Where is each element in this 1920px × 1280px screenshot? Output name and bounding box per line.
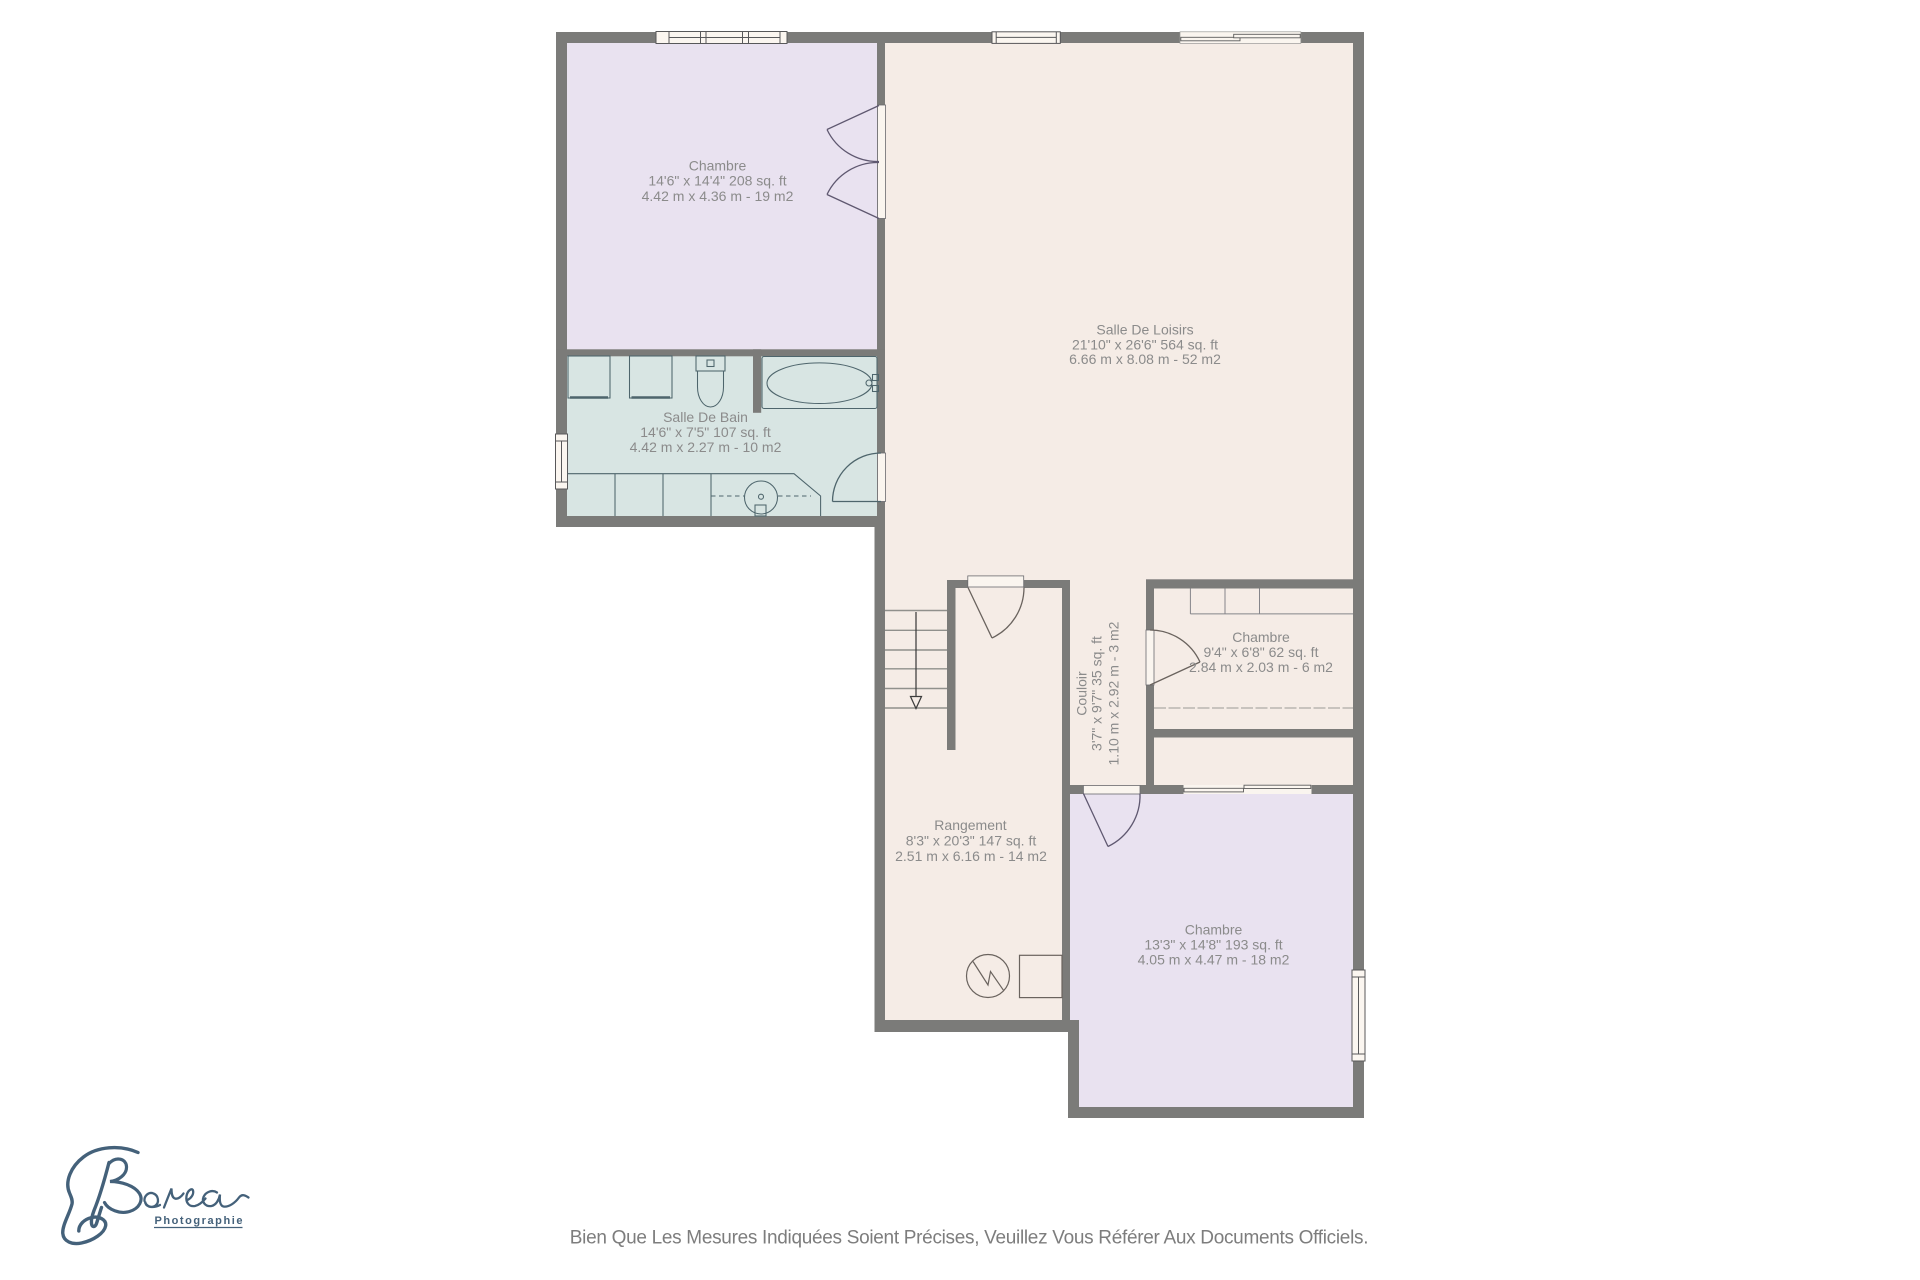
svg-text:3'7" x 9'7" 35 sq. ft: 3'7" x 9'7" 35 sq. ft (1089, 636, 1105, 751)
svg-text:Rangement: Rangement (934, 817, 1006, 833)
svg-text:Chambre: Chambre (689, 157, 747, 173)
svg-text:21'10" x 26'6" 564 sq. ft: 21'10" x 26'6" 564 sq. ft (1072, 336, 1218, 352)
svg-text:13'3" x 14'8" 193 sq. ft: 13'3" x 14'8" 193 sq. ft (1144, 937, 1282, 953)
svg-text:Bien Que Les Mesures Indiquées: Bien Que Les Mesures Indiquées Soient Pr… (570, 1228, 1368, 1249)
svg-text:Chambre: Chambre (1232, 629, 1290, 645)
svg-text:2.84 m x 2.03 m - 6 m2: 2.84 m x 2.03 m - 6 m2 (1189, 659, 1333, 675)
svg-text:6.66 m x 8.08 m - 52 m2: 6.66 m x 8.08 m - 52 m2 (1069, 351, 1221, 367)
svg-text:Photographie: Photographie (155, 1215, 245, 1227)
svg-text:9'4" x 6'8" 62 sq. ft: 9'4" x 6'8" 62 sq. ft (1204, 644, 1319, 660)
svg-text:Chambre: Chambre (1185, 922, 1243, 938)
svg-text:4.05 m x 4.47 m - 18 m2: 4.05 m x 4.47 m - 18 m2 (1138, 952, 1290, 968)
svg-text:2.51 m x 6.16 m - 14 m2: 2.51 m x 6.16 m - 14 m2 (895, 848, 1047, 864)
svg-text:Salle De Bain: Salle De Bain (663, 409, 748, 425)
svg-text:Salle De Loisirs: Salle De Loisirs (1096, 321, 1193, 337)
svg-text:1.10 m x 2.92 m - 3 m2: 1.10 m x 2.92 m - 3 m2 (1106, 621, 1122, 765)
svg-text:8'3" x 20'3" 147 sq. ft: 8'3" x 20'3" 147 sq. ft (906, 832, 1037, 848)
svg-text:14'6" x 7'5" 107 sq. ft: 14'6" x 7'5" 107 sq. ft (640, 424, 771, 440)
svg-text:14'6" x 14'4" 208 sq. ft: 14'6" x 14'4" 208 sq. ft (648, 173, 786, 189)
svg-text:4.42 m x 4.36 m - 19 m2: 4.42 m x 4.36 m - 19 m2 (642, 188, 794, 204)
svg-text:4.42 m x 2.27 m - 10 m2: 4.42 m x 2.27 m - 10 m2 (630, 439, 782, 455)
svg-text:Couloir: Couloir (1074, 671, 1090, 716)
